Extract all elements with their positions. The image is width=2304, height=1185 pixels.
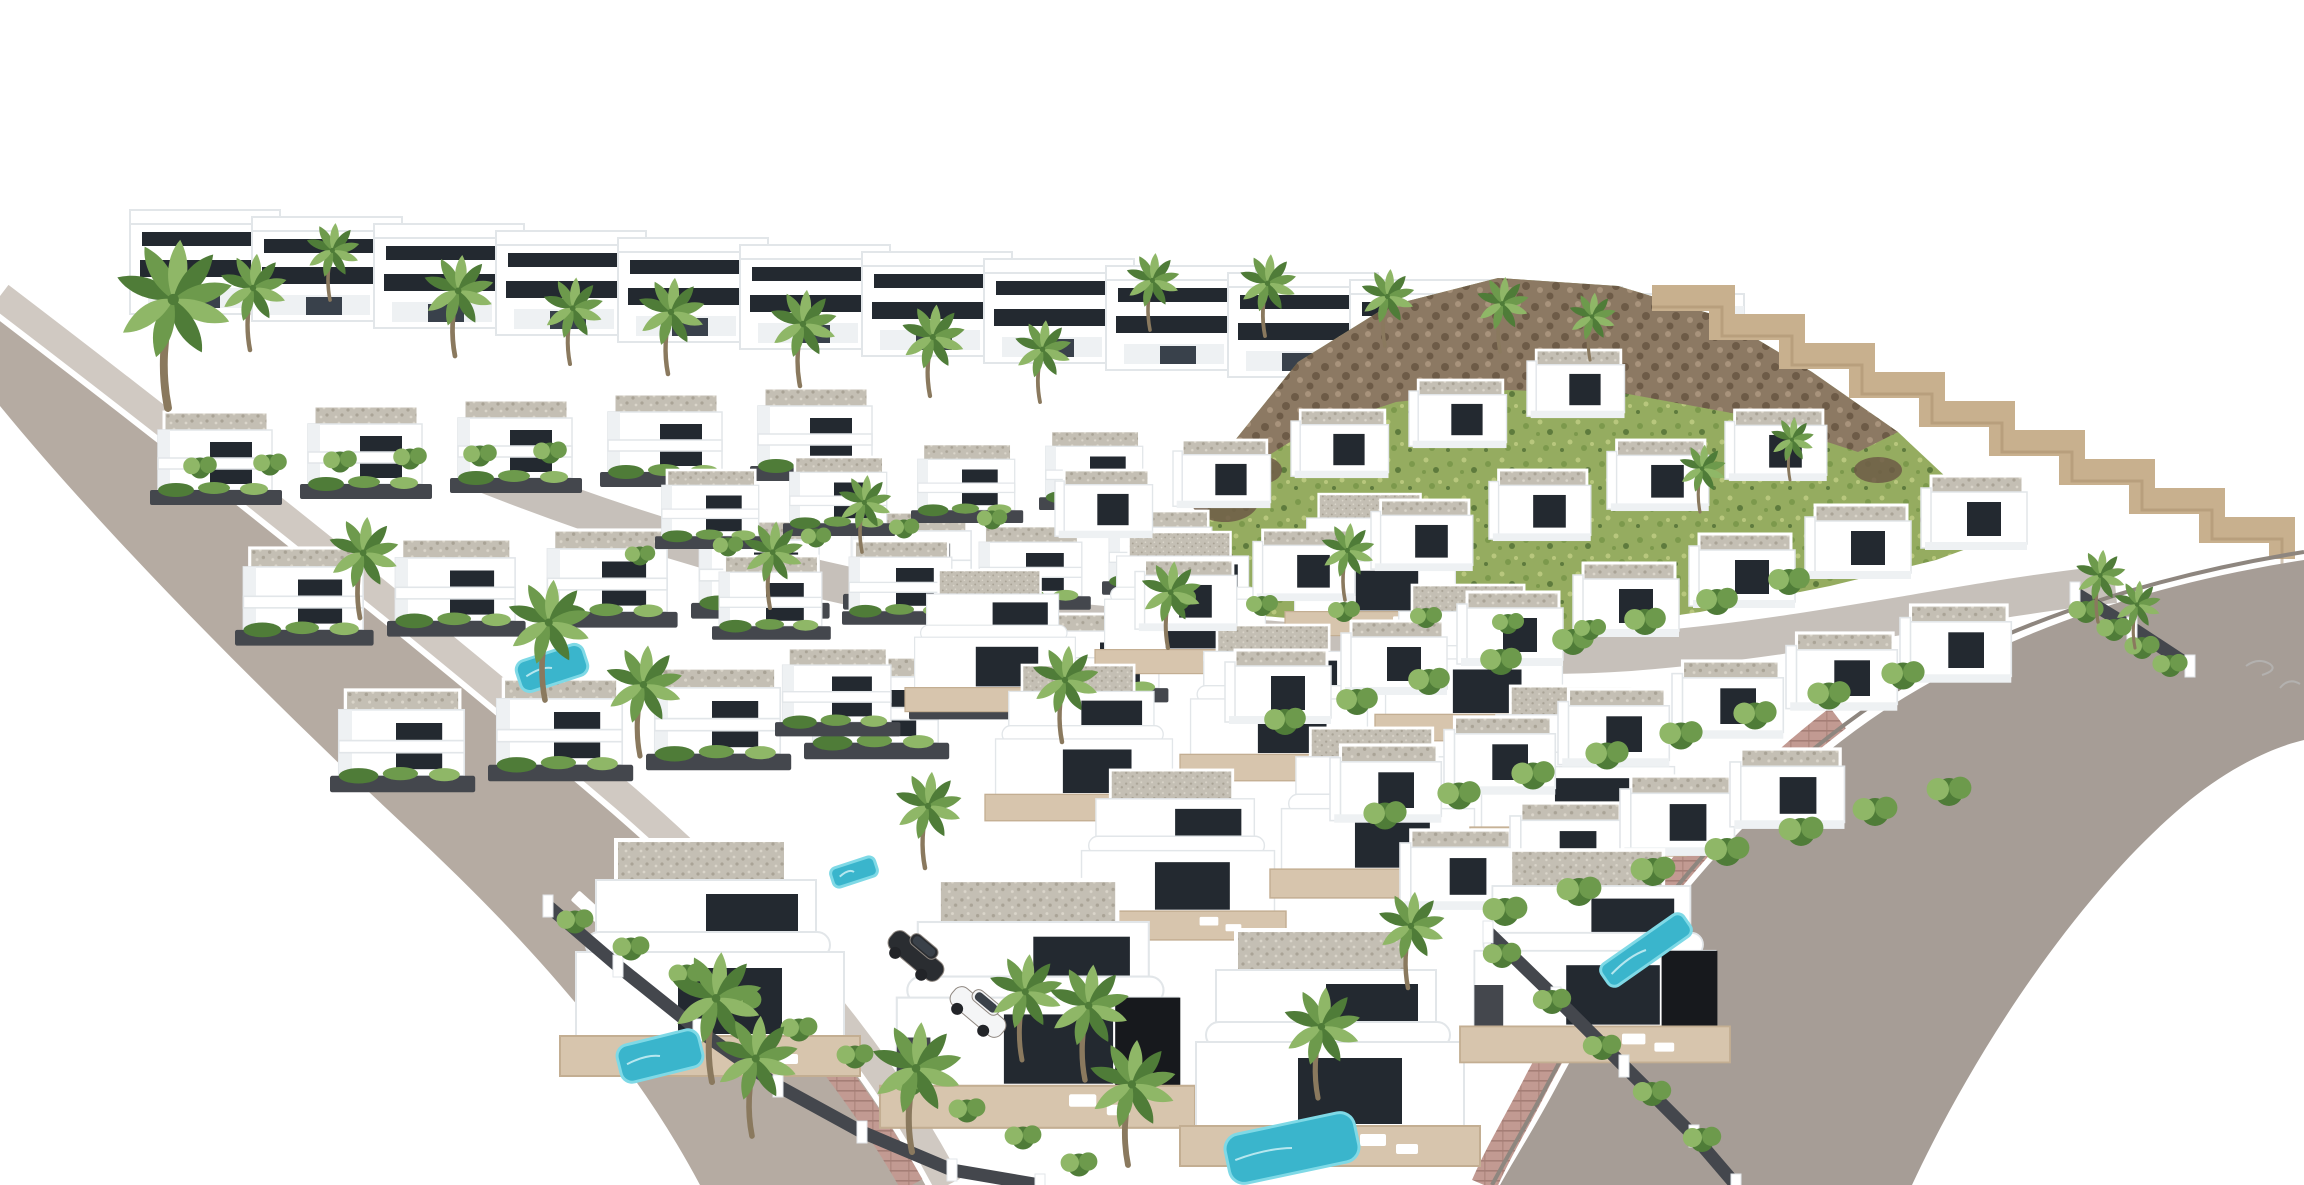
terrace-furniture bbox=[1396, 1144, 1418, 1154]
rowhouse bbox=[1409, 380, 1507, 448]
window-glazing bbox=[1215, 464, 1246, 495]
aerial-render: Aerial 3D architectural render of a whit… bbox=[0, 0, 2304, 1185]
villa bbox=[488, 679, 633, 781]
window-glazing bbox=[1155, 862, 1230, 910]
window-glazing bbox=[1097, 494, 1128, 525]
rowhouse bbox=[1725, 410, 1827, 481]
rowhouse bbox=[1055, 470, 1153, 538]
terrace-furniture bbox=[1069, 1094, 1096, 1107]
window-glazing bbox=[1415, 525, 1448, 558]
wall-pillar bbox=[1035, 1174, 1045, 1185]
rowhouse bbox=[1489, 470, 1591, 541]
window-glazing bbox=[1533, 495, 1566, 528]
window-glazing bbox=[1670, 804, 1707, 841]
rowhouse bbox=[1921, 476, 2027, 550]
villa bbox=[775, 648, 900, 736]
window-glazing bbox=[1735, 560, 1769, 594]
villa bbox=[911, 444, 1023, 523]
window-glazing bbox=[1651, 465, 1684, 498]
rowhouse bbox=[1805, 505, 1911, 579]
window-glazing bbox=[1851, 531, 1885, 565]
terrace-furniture bbox=[1622, 1034, 1645, 1045]
black-accent-wall bbox=[1662, 951, 1718, 1028]
rowhouse bbox=[1173, 440, 1271, 508]
window-glazing bbox=[1967, 502, 2001, 536]
window-glazing bbox=[1297, 555, 1330, 588]
window-glazing bbox=[1948, 632, 1984, 668]
wall-pillar bbox=[613, 955, 623, 977]
wall-pillar bbox=[1619, 1055, 1629, 1077]
window-glazing bbox=[1780, 777, 1817, 814]
window-glazing bbox=[1569, 374, 1600, 405]
wall-pillar bbox=[857, 1121, 867, 1143]
render-viewport: Aerial 3D architectural render of a whit… bbox=[0, 0, 2304, 1185]
terrace-furniture bbox=[1200, 917, 1219, 926]
terrace-furniture bbox=[1360, 1134, 1386, 1146]
window-glazing bbox=[1451, 404, 1482, 435]
villa bbox=[330, 690, 475, 792]
wall-pillar bbox=[947, 1159, 957, 1181]
rowhouse bbox=[1730, 749, 1844, 829]
rock-outcrop bbox=[1854, 457, 1902, 483]
rowhouse bbox=[1291, 410, 1389, 478]
rowhouse bbox=[1371, 500, 1473, 571]
wall-pillar bbox=[2070, 582, 2080, 604]
window-glazing bbox=[1450, 858, 1487, 895]
wall-pillar bbox=[543, 895, 553, 917]
wall-pillar bbox=[1483, 921, 1493, 943]
villa bbox=[655, 470, 767, 549]
window-glazing bbox=[1271, 676, 1305, 710]
terrace-furniture bbox=[1654, 1043, 1674, 1052]
rowhouse bbox=[1527, 350, 1625, 418]
villa bbox=[387, 539, 526, 637]
wall-pillar bbox=[1731, 1174, 1741, 1185]
window-glazing bbox=[1356, 571, 1418, 611]
window-glazing bbox=[1333, 434, 1364, 465]
